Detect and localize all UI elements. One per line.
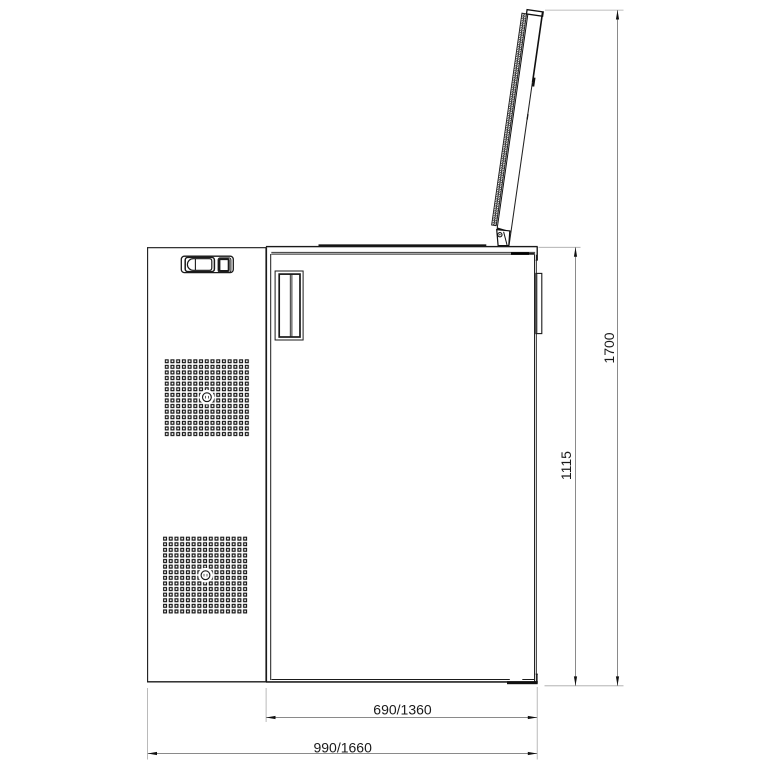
svg-text:1115: 1115 [558, 451, 574, 480]
svg-text:990/1660: 990/1660 [313, 739, 372, 755]
svg-text:1700: 1700 [601, 332, 617, 363]
svg-text:690/1360: 690/1360 [373, 701, 432, 717]
